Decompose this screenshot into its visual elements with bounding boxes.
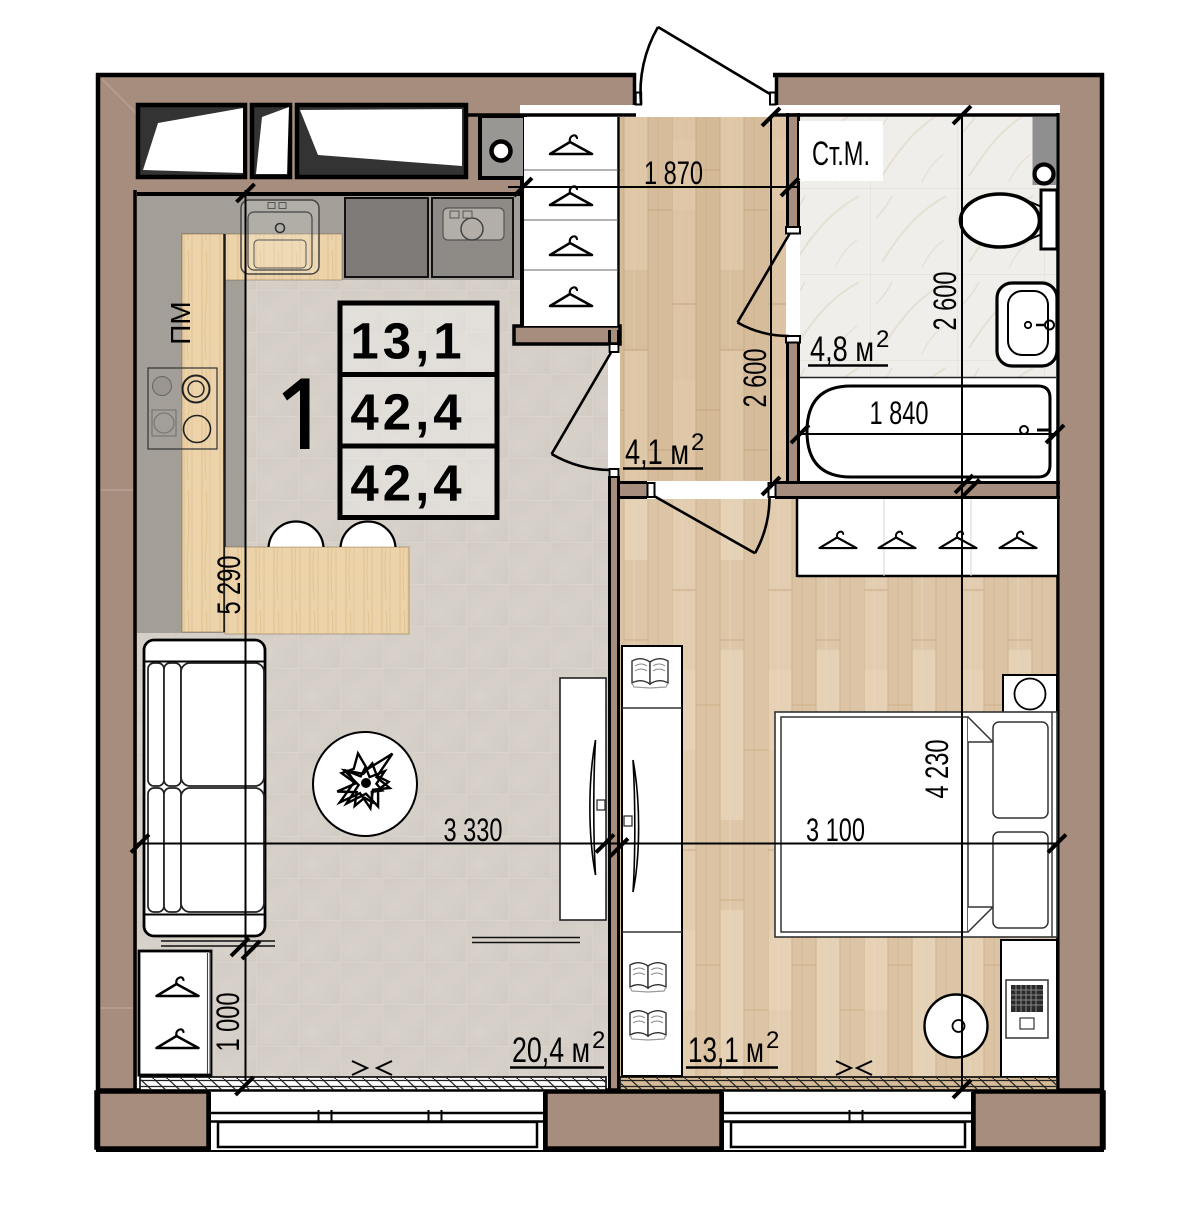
svg-text:20,4 м: 20,4 м xyxy=(512,1031,590,1070)
svg-text:1 870: 1 870 xyxy=(644,155,703,191)
svg-text:2 600: 2 600 xyxy=(927,272,963,331)
svg-text:4,8 м: 4,8 м xyxy=(810,330,874,369)
svg-text:42,4: 42,4 xyxy=(350,384,465,441)
svg-text:ПМ: ПМ xyxy=(165,301,196,344)
svg-text:5 290: 5 290 xyxy=(211,556,247,615)
svg-text:Ст.М.: Ст.М. xyxy=(812,135,870,173)
svg-text:2: 2 xyxy=(876,326,889,353)
svg-text:2: 2 xyxy=(766,1027,779,1054)
svg-text:1 000: 1 000 xyxy=(210,993,246,1052)
svg-text:1 840: 1 840 xyxy=(870,395,929,431)
svg-text:2: 2 xyxy=(592,1027,605,1054)
svg-text:4 230: 4 230 xyxy=(919,740,955,799)
svg-text:3 330: 3 330 xyxy=(444,812,503,848)
svg-text:42,4: 42,4 xyxy=(350,455,465,512)
svg-text:13,1 м: 13,1 м xyxy=(688,1031,764,1070)
svg-text:3 100: 3 100 xyxy=(806,812,865,848)
svg-text:4,1 м: 4,1 м xyxy=(625,433,689,472)
svg-text:13,1: 13,1 xyxy=(350,313,465,370)
svg-text:2: 2 xyxy=(691,429,704,456)
svg-text:2 600: 2 600 xyxy=(737,349,773,408)
